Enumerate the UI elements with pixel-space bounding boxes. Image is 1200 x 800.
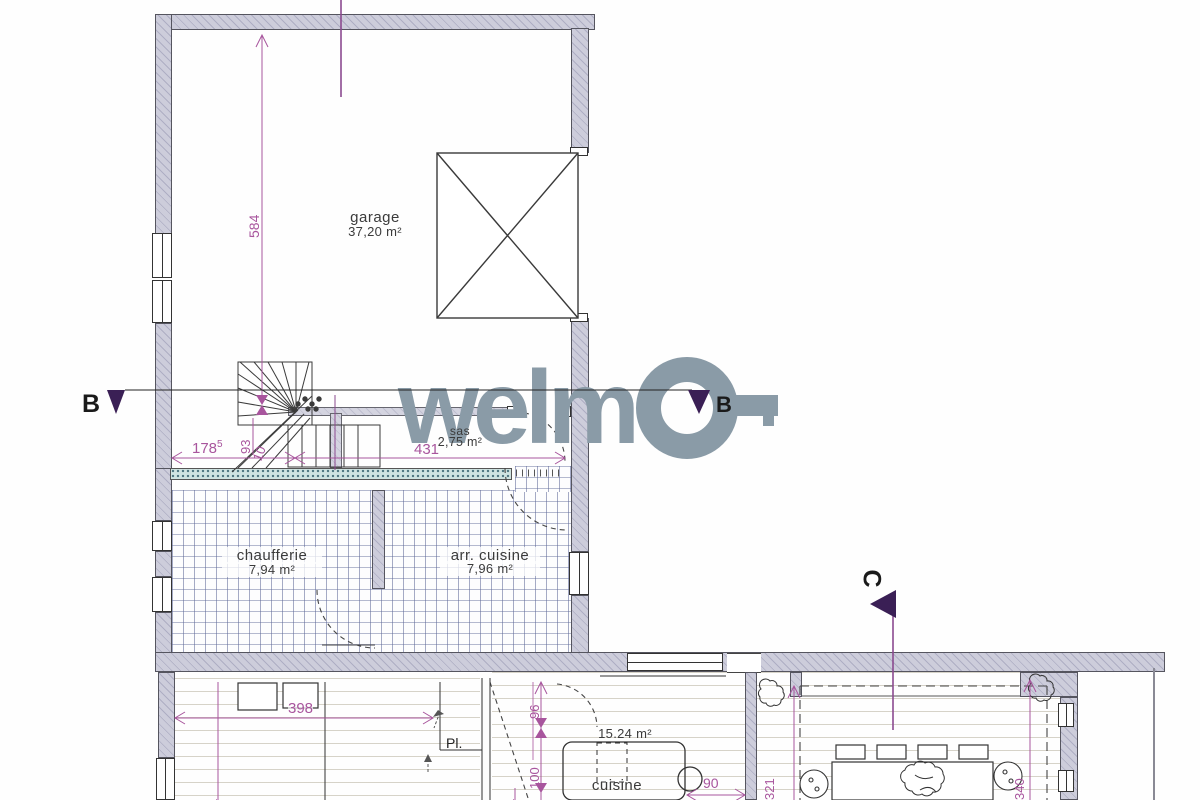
section-markers bbox=[0, 0, 1200, 800]
section-label-b-left: B bbox=[82, 390, 100, 419]
section-label-b-right: B bbox=[716, 392, 732, 418]
section-b-triangle-left bbox=[107, 390, 125, 414]
section-c-triangle bbox=[870, 590, 896, 618]
floor-plan: welm B B C garage 37,20 m² chaufferie 7,… bbox=[0, 0, 1200, 800]
section-label-c: C bbox=[857, 569, 886, 587]
section-b-triangle-right bbox=[688, 390, 710, 414]
